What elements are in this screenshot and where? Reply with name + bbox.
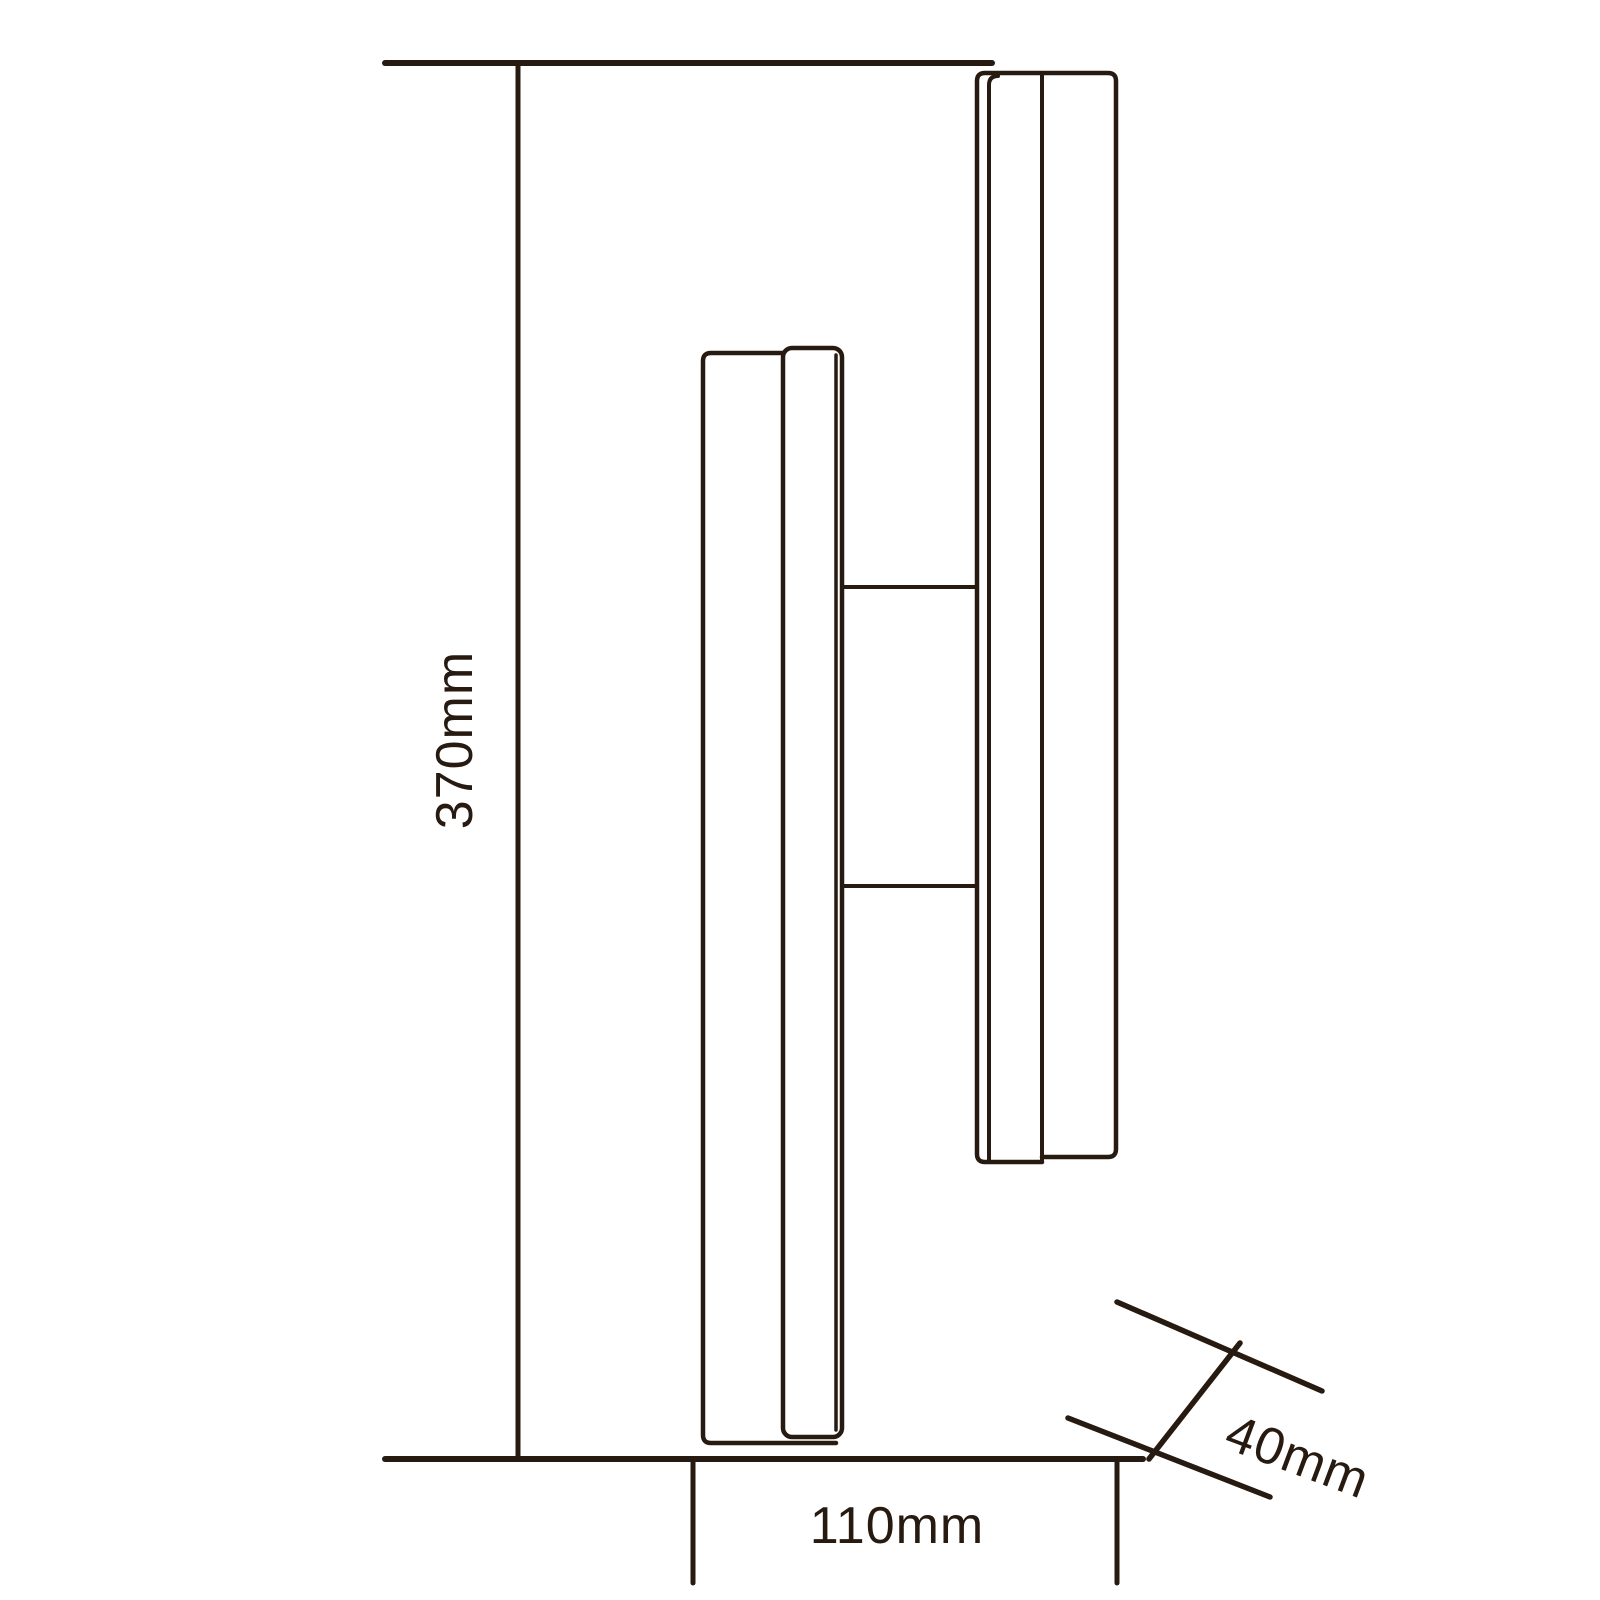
back-bar-left-inner-line [989, 76, 998, 1162]
mounting-arms [842, 587, 977, 886]
height-dimension-label: 370mm [426, 651, 484, 829]
front-bar [703, 348, 842, 1443]
ink-layer [385, 63, 1322, 1583]
back-bar [977, 73, 1116, 1162]
width-dimension-label: 110mm [810, 1497, 985, 1555]
width-dimension [385, 1459, 1143, 1583]
depth-dimension-label: 40mm [1218, 1404, 1377, 1510]
depth-extension-upper [1117, 1302, 1322, 1391]
technical-drawing-canvas: 370mm 110mm 40mm [0, 0, 1600, 1600]
drawing-page: 370mm 110mm 40mm [0, 0, 1600, 1600]
back-bar-outline [977, 73, 1116, 1162]
front-bar-diffuser-outline [783, 348, 842, 1437]
dimension-labels: 370mm 110mm 40mm [426, 651, 1377, 1555]
front-bar-body-outline [703, 353, 836, 1443]
